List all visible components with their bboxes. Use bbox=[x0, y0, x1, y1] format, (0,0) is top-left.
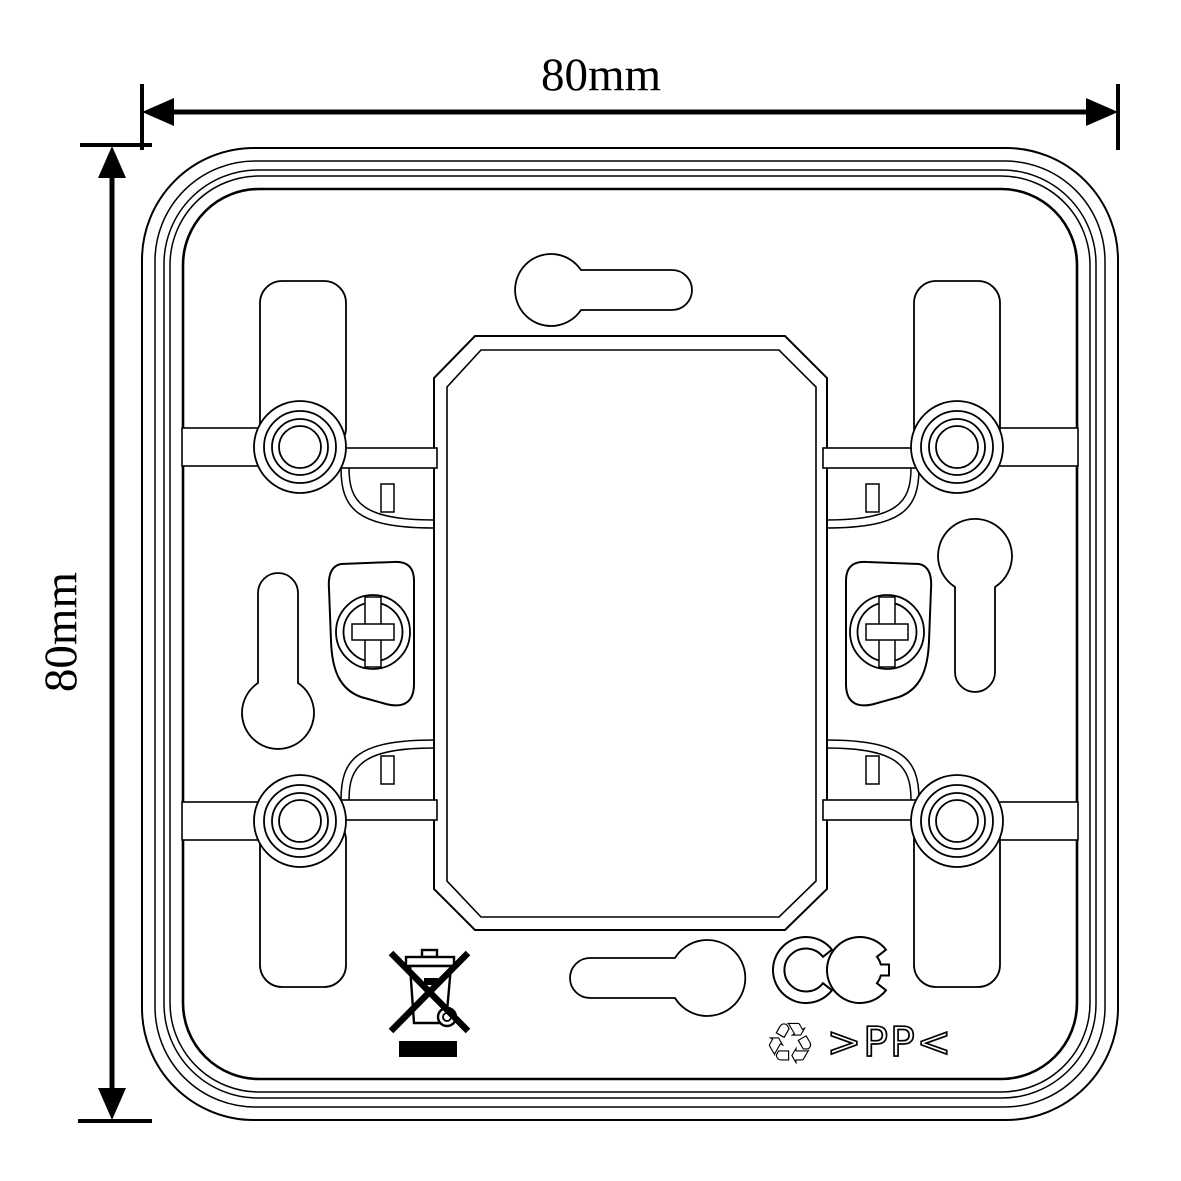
keyhole-right bbox=[938, 519, 1012, 692]
arrowhead-right-icon bbox=[1086, 98, 1118, 126]
dimension-height: 80mm bbox=[35, 145, 152, 1121]
ce-mark bbox=[773, 937, 889, 1003]
keyhole-left bbox=[242, 573, 314, 749]
screw-boss-bottom-right bbox=[911, 775, 1003, 867]
material-code-label: >PP< bbox=[827, 1018, 953, 1066]
width-dimension-label: 80mm bbox=[541, 49, 661, 101]
corner-hooks bbox=[341, 468, 919, 800]
screw-boss-bottom-left bbox=[254, 775, 346, 867]
central-opening bbox=[434, 336, 827, 930]
ce-letter-e bbox=[827, 937, 889, 1003]
screw-boss-top-left bbox=[254, 401, 346, 493]
dimension-width: 80mm bbox=[142, 49, 1118, 150]
mounting-tabs bbox=[381, 484, 879, 784]
keyhole-bottom bbox=[570, 940, 745, 1016]
recycling-symbol-icon: ♲ bbox=[764, 1010, 816, 1078]
keyhole-top bbox=[515, 254, 692, 326]
weee-bin-icon bbox=[391, 950, 468, 1057]
screw-boss-top-right bbox=[911, 401, 1003, 493]
arrowhead-down-icon bbox=[98, 1088, 126, 1120]
arrowhead-left-icon bbox=[142, 98, 174, 126]
height-dimension-label: 80mm bbox=[35, 572, 87, 692]
ce-letter-c bbox=[773, 937, 832, 1003]
arrowhead-up-icon bbox=[98, 146, 126, 178]
fixing-screw-right bbox=[846, 562, 931, 705]
drawing-canvas: ♲ >PP< 80mm 80mm bbox=[0, 0, 1181, 1181]
fixing-screw-left bbox=[329, 562, 414, 705]
technical-drawing: ♲ >PP< 80mm 80mm bbox=[0, 0, 1181, 1181]
weee-underline-bar bbox=[399, 1041, 457, 1057]
